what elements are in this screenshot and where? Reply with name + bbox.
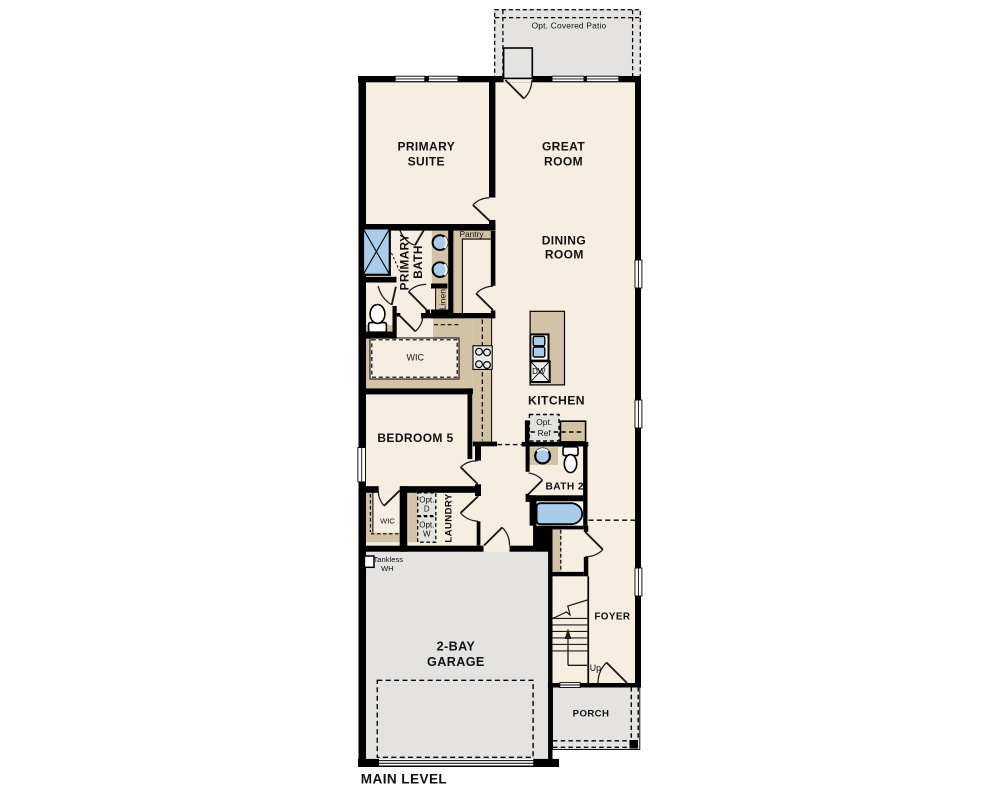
svg-text:ROOM: ROOM — [544, 155, 583, 169]
svg-text:WH: WH — [381, 564, 394, 573]
svg-text:KITCHEN: KITCHEN — [528, 394, 585, 408]
svg-text:Opt.: Opt. — [419, 521, 434, 530]
svg-text:Opt.: Opt. — [536, 417, 552, 427]
svg-text:Opt.: Opt. — [419, 496, 434, 505]
svg-text:FOYER: FOYER — [594, 612, 630, 623]
svg-text:DW: DW — [532, 367, 546, 376]
svg-text:WIC: WIC — [407, 353, 425, 363]
svg-text:ROOM: ROOM — [545, 248, 584, 262]
svg-text:GREAT: GREAT — [542, 140, 585, 154]
svg-text:Tankless: Tankless — [374, 555, 404, 564]
svg-text:Up: Up — [590, 663, 601, 673]
svg-text:SUITE: SUITE — [408, 155, 445, 169]
svg-text:MAIN LEVEL: MAIN LEVEL — [361, 772, 447, 787]
svg-text:PRIMARY: PRIMARY — [397, 140, 455, 154]
svg-text:GARAGE: GARAGE — [427, 655, 485, 669]
svg-text:Opt. Covered Patio: Opt. Covered Patio — [532, 21, 607, 31]
svg-text:2-BAY: 2-BAY — [437, 639, 476, 653]
svg-text:BATH: BATH — [411, 245, 425, 279]
svg-text:D: D — [424, 505, 430, 514]
svg-text:Linen: Linen — [438, 289, 448, 310]
svg-text:LAUNDRY: LAUNDRY — [444, 493, 455, 543]
svg-text:Ref: Ref — [538, 428, 552, 438]
svg-text:W: W — [423, 530, 431, 539]
svg-text:WIC: WIC — [380, 516, 395, 525]
svg-text:BEDROOM 5: BEDROOM 5 — [377, 431, 453, 445]
svg-text:DINING: DINING — [542, 233, 586, 247]
svg-text:PORCH: PORCH — [573, 708, 610, 719]
svg-text:PRIMARY: PRIMARY — [398, 234, 412, 291]
svg-text:BATH 2: BATH 2 — [545, 481, 583, 492]
svg-text:Pantry: Pantry — [460, 229, 485, 239]
